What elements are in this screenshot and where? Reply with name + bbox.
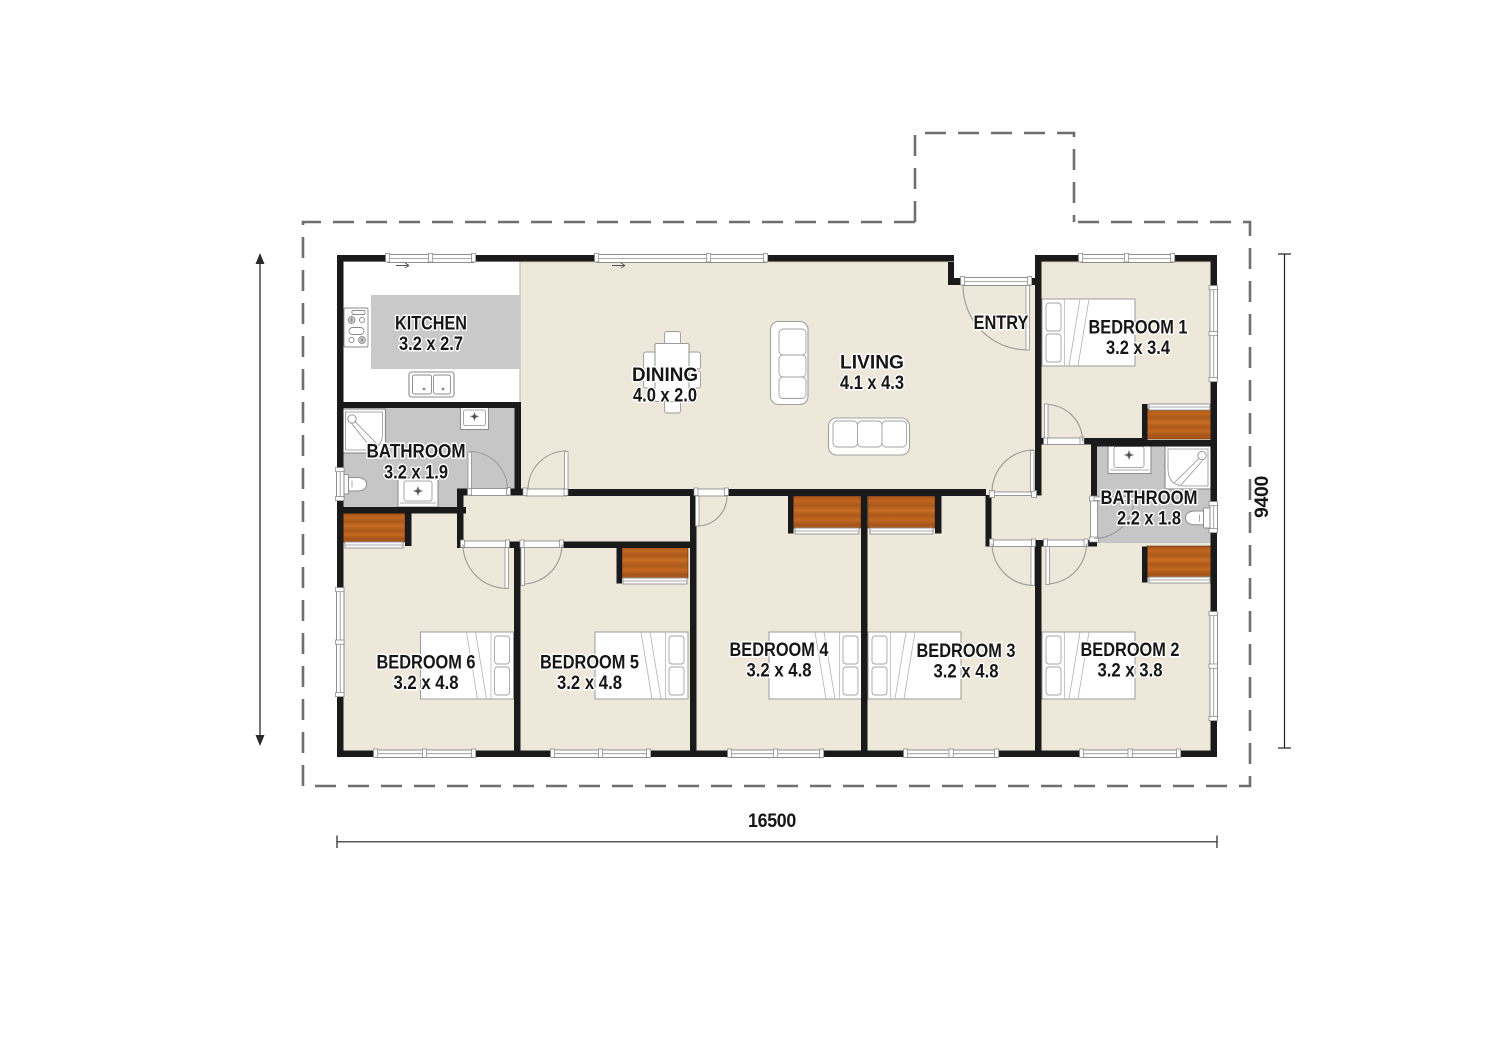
svg-text:3.2 x 4.8: 3.2 x 4.8 [747, 660, 812, 682]
svg-text:BEDROOM 4: BEDROOM 4 [730, 639, 829, 661]
svg-text:2.2 x 1.8: 2.2 x 1.8 [1117, 508, 1181, 530]
svg-text:LIVING: LIVING [840, 352, 904, 374]
svg-text:16500: 16500 [748, 811, 796, 832]
svg-text:BEDROOM 5: BEDROOM 5 [540, 652, 639, 674]
svg-text:KITCHEN: KITCHEN [395, 313, 467, 335]
svg-text:BATHROOM: BATHROOM [367, 441, 466, 463]
svg-text:BEDROOM 2: BEDROOM 2 [1081, 639, 1180, 661]
svg-text:3.2 x 3.8: 3.2 x 3.8 [1098, 660, 1163, 682]
svg-text:3.2 x 2.7: 3.2 x 2.7 [399, 333, 463, 355]
svg-text:ENTRY: ENTRY [974, 312, 1029, 334]
svg-text:3.2 x 4.8: 3.2 x 4.8 [934, 661, 999, 683]
svg-text:3.2 x 4.8: 3.2 x 4.8 [394, 672, 459, 694]
svg-text:4.0 x 2.0: 4.0 x 2.0 [633, 385, 697, 407]
svg-text:3.2 x 1.9: 3.2 x 1.9 [384, 462, 448, 484]
svg-text:BATHROOM: BATHROOM [1101, 487, 1198, 509]
svg-text:BEDROOM 6: BEDROOM 6 [377, 652, 476, 674]
svg-text:3.2 x 4.8: 3.2 x 4.8 [557, 672, 622, 694]
svg-text:DINING: DINING [632, 364, 698, 386]
svg-text:BEDROOM 1: BEDROOM 1 [1089, 317, 1188, 339]
svg-text:3.2 x 3.4: 3.2 x 3.4 [1106, 337, 1170, 359]
svg-text:9400: 9400 [1252, 476, 1273, 518]
svg-text:BEDROOM 3: BEDROOM 3 [917, 640, 1016, 662]
svg-text:4.1 x 4.3: 4.1 x 4.3 [840, 372, 904, 394]
